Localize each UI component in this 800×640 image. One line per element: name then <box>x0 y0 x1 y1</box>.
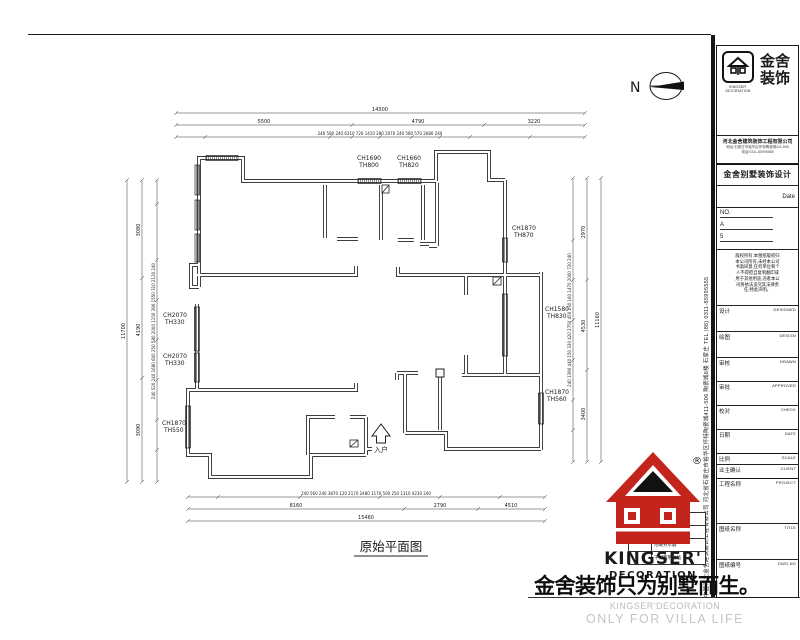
dim-right-mid: 2970 <box>581 226 587 239</box>
north-arrow: N <box>630 73 684 100</box>
number-block: NO. A 5 <box>717 208 798 250</box>
tb-row-client: 业主确认CLIENT <box>717 465 798 479</box>
window-label: CH2070 <box>163 353 187 360</box>
window-label: CH1580 <box>545 306 569 313</box>
tb-row-label-en: CHECK <box>781 407 796 412</box>
dim-bottom-mid: 4510 <box>505 503 518 509</box>
tb-row-label-zh: 比例 <box>719 455 730 463</box>
tb-row-label-zh: 业主确认 <box>719 466 741 474</box>
tb-row-label-en: DESIGN <box>779 333 796 338</box>
dim-left-detail: 240 520 240 1680 600 250 580 2000 1150 3… <box>151 262 156 399</box>
kingser-logo-icon <box>722 51 754 83</box>
kingser-logo-glyph <box>727 56 749 78</box>
date-row: Date <box>717 186 798 208</box>
tb-row-label-zh: 图纸名称 <box>719 525 741 533</box>
tb-row-label-zh: 绘图 <box>719 333 730 341</box>
window-hatch <box>503 238 508 262</box>
entry-label: 入户 <box>374 445 388 454</box>
logo-letter-c: C <box>651 485 655 492</box>
window-hatch <box>195 200 200 230</box>
tb-row-design: 绘图DESIGN <box>717 332 798 358</box>
tb-row-approved: 审批APPROVED <box>717 382 798 406</box>
window-label: CH1690 <box>357 155 381 162</box>
note-line: 任,特此声明。 <box>719 287 796 293</box>
dim-right-mid: 3400 <box>581 408 587 421</box>
tb-row-project: 工程名称PROJECT <box>717 478 798 524</box>
tb-row-label-en: SCALE <box>782 455 796 460</box>
logo-base-sq <box>664 512 672 520</box>
tb-row-label-zh: 图纸编号 <box>719 561 741 569</box>
dim-left-mid: 3080 <box>136 224 142 237</box>
dim-top-mid: 3220 <box>528 119 541 125</box>
dim-top-mid: 4790 <box>412 119 425 125</box>
tb-row-label-en: DRAWN <box>780 359 796 364</box>
tb-row-check: 校对CHECK <box>717 406 798 430</box>
plan-title-group: 原始平面图 <box>354 539 428 556</box>
window-label: TH830 <box>546 313 567 320</box>
tb-row-label-en: APPROVED <box>772 383 796 388</box>
window-hatch <box>195 234 200 262</box>
walls <box>188 152 541 477</box>
door-symbols <box>350 185 501 447</box>
window-label: CH1660 <box>397 155 421 162</box>
tb-row-designed: 设计DESIGNED <box>717 306 798 332</box>
window-label: CH1870 <box>545 389 569 396</box>
window-hatch <box>195 353 200 382</box>
dim-right-mid: 4530 <box>581 320 587 333</box>
window-label: TH330 <box>164 360 185 367</box>
wall-pier <box>436 369 444 377</box>
window-label: CH1870 <box>162 420 186 427</box>
window-label: TH330 <box>164 319 185 326</box>
title-block-logo: KINGSER' DECORATION 金舍 装饰 <box>717 46 798 136</box>
window-label: TH870 <box>513 232 534 239</box>
window-hatch <box>195 307 200 351</box>
copyright-note: 版权所有:本图纸版权归 本公司所有,未经本公司 书面同意,任何单位和个 人不得擅… <box>717 250 798 306</box>
no-item-5: 5 <box>720 234 773 242</box>
dim-top-total: 14300 <box>372 107 388 113</box>
tb-row-label-en: TITLE <box>784 525 796 530</box>
dim-bottom-mid: 2790 <box>434 503 447 509</box>
window-hatch <box>358 179 381 184</box>
company-address-1: 地址:石家庄市裕华区怀特陶瓷城411-506 <box>717 145 798 150</box>
logo-base-sq <box>628 512 636 520</box>
tb-row-title: 图纸名称TITLE <box>717 524 798 560</box>
window-hatch <box>206 156 238 161</box>
footer-en-2: ONLY FOR VILLA LIFE <box>540 612 790 626</box>
kingser-red-logo: ® A C KINGSER' DECORATION <box>598 448 708 588</box>
drawing-sheet: 中国河北金舍建筑装饰工程有限公司 河北省石家庄市裕华区怀特陶瓷城411-506 … <box>0 0 800 640</box>
dim-left-mid: 4190 <box>136 324 142 337</box>
window-label: TH550 <box>163 427 184 434</box>
registered-mark: ® <box>692 456 702 467</box>
brand-cn-2: 装饰 <box>755 70 795 87</box>
footer-en-1: KINGSER'DECORATION <box>540 601 790 611</box>
tb-row-label-zh: 日期 <box>719 431 730 439</box>
tb-row-label-zh: 设计 <box>719 307 730 315</box>
logo-text-kingser: KINGSER' <box>604 549 702 569</box>
dimension-texts: 14300 5500 4790 3220 240 580 240 6310 72… <box>121 107 601 521</box>
dim-right-detail: 240 1390 440 150 330 420 2750 450 230 16… <box>567 253 572 387</box>
kingser-red-logo-svg: ® A C KINGSER' DECORATION <box>598 448 708 588</box>
company-block: 河北金舍建筑装饰工程有限公司 地址:石家庄市裕华区怀特陶瓷城411-506 电话… <box>717 136 798 164</box>
window-labels: CH1690 TH800 CH1660 TH820 CH1870 TH870 C… <box>162 155 569 434</box>
logo-base-slit <box>616 528 690 532</box>
title-block: KINGSER' DECORATION 金舍 装饰 河北金舍建筑装饰工程有限公司… <box>716 45 799 598</box>
window-hatch <box>195 165 200 195</box>
dim-right-total: 11160 <box>595 312 601 328</box>
tb-row-label-en: DWG.NO <box>778 561 796 566</box>
dept-title: 金舍别墅装饰设计 <box>717 164 798 186</box>
plan-title: 原始平面图 <box>360 539 423 554</box>
tb-row-label-zh: 工程名称 <box>719 480 741 488</box>
tb-row-label-en: DESIGNED <box>774 307 797 312</box>
window-label: TH560 <box>546 396 567 403</box>
tb-row-scale: 比例SCALE <box>717 453 798 465</box>
wall-outline-black <box>188 152 541 477</box>
no-label: NO. <box>720 210 773 218</box>
dim-left-total: 11700 <box>121 323 127 339</box>
dim-bottom-total: 15460 <box>358 515 374 521</box>
tb-row-date: 日期DATE <box>717 430 798 454</box>
brand-cn-1: 金舍 <box>755 53 795 70</box>
north-label: N <box>630 80 640 96</box>
company-address-2: 电话:0311-85995555 <box>717 150 798 155</box>
dim-top-mid: 5500 <box>258 119 271 125</box>
tb-row-label-zh: 审核 <box>719 359 730 367</box>
company-name: 河北金舍建筑装饰工程有限公司 <box>717 138 798 145</box>
windows <box>186 156 544 449</box>
window-hatch <box>186 406 191 448</box>
window-hatch <box>398 179 421 184</box>
tb-row-label-zh: 校对 <box>719 407 730 415</box>
dim-bottom-mid: 8160 <box>290 503 303 509</box>
window-label: TH820 <box>398 162 419 169</box>
entry-arrow-icon <box>372 424 390 443</box>
tb-row-label-zh: 审批 <box>719 383 730 391</box>
tb-row-label-en: PROJECT <box>776 480 796 485</box>
dim-bottom-detail: 240 560 240 3870 120 2170 2480 1170 500 … <box>301 491 431 496</box>
footer-english: KINGSER'DECORATION ONLY FOR VILLA LIFE <box>540 601 790 626</box>
slogan: 金舍装饰只为别墅而生。 <box>534 570 800 600</box>
window-label: CH2070 <box>163 312 187 319</box>
tb-row-label-en: CLIENT <box>781 466 796 471</box>
entry-marker: 入户 <box>372 424 390 454</box>
dim-top-detail: 240 580 240 6310 720 1410 280 2070 240 5… <box>318 131 443 136</box>
window-label: TH800 <box>358 162 379 169</box>
tb-row-drawn: 审核DRAWN <box>717 358 798 382</box>
no-item-a: A <box>720 222 773 230</box>
dim-left-mid: 3090 <box>136 424 142 437</box>
window-hatch <box>539 393 544 424</box>
brand-en-2: DECORATION <box>725 89 750 93</box>
window-hatch <box>503 294 508 356</box>
window-label: CH1870 <box>512 225 536 232</box>
tb-row-label-en: DATE <box>785 431 796 436</box>
